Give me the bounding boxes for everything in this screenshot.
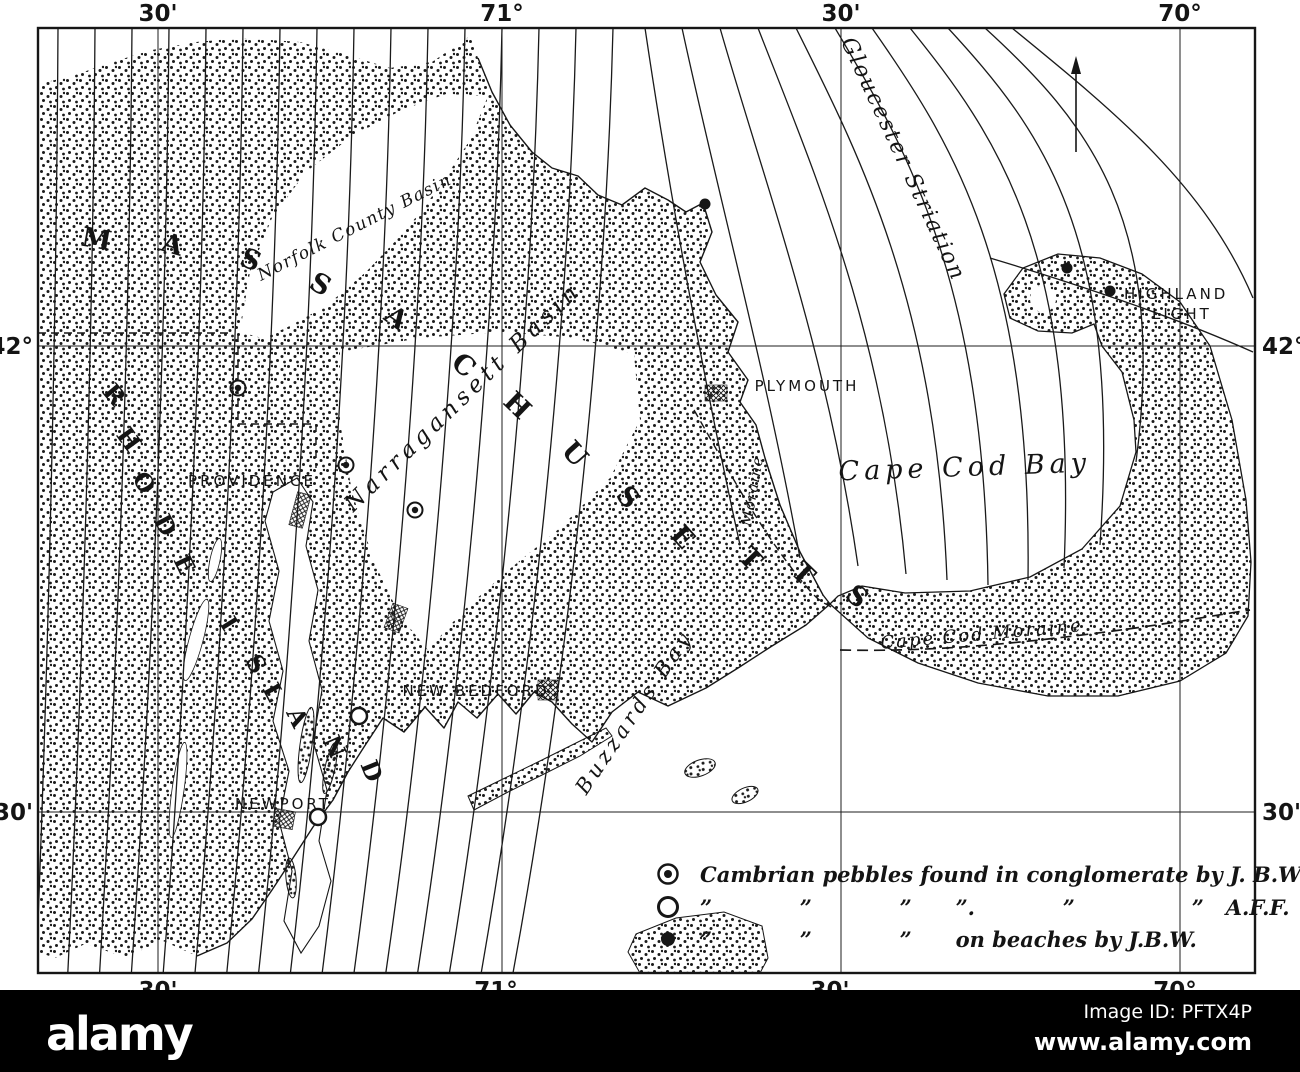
striation-line [985, 28, 1143, 462]
north-arrow-icon [1071, 56, 1081, 152]
legend-row-2: ” ” ” ”. ” ” A.F.F. [700, 895, 1290, 920]
land-stipple [38, 36, 1251, 973]
alamy-logo: alamy [46, 1007, 194, 1061]
top-label: 70° [1158, 1, 1202, 27]
providence-label: PROVIDENCE [188, 472, 316, 490]
open-circle-icon [351, 708, 367, 724]
legend-row-1: Cambrian pebbles found in conglomerate b… [700, 862, 1300, 887]
image-id-text: Image ID: PFTX4P [1084, 1001, 1252, 1023]
map-figure: 30' 71° 30' 70° 42° 30' 42° 30' 30' 71° … [0, 0, 1300, 1072]
provincetown-harbor [1030, 286, 1056, 312]
highland-light-label: LIGHT [1152, 305, 1212, 323]
highland-light-label: HIGHLAND [1124, 285, 1228, 303]
left-label: 42° [0, 334, 33, 360]
watermark-footer: alamy Image ID: PFTX4P www.alamy.com [0, 990, 1300, 1072]
legend-row-3: ” ” ” on beaches by J.B.W. [700, 927, 1197, 952]
gloucester-striation-label: Gloucester Striation [835, 33, 970, 285]
website-text: www.alamy.com [1034, 1028, 1252, 1056]
filled-dot-icon [1062, 263, 1073, 274]
striation-line [872, 28, 1028, 580]
small-island [729, 783, 760, 808]
filled-dot-icon [661, 932, 675, 946]
filled-dot-icon [1105, 286, 1116, 297]
circled-dot-icon [659, 865, 678, 884]
cape-cod-bay-label: Cape Cod Bay [838, 448, 1092, 488]
new-bedford-label: NEW BEDFORD [402, 682, 549, 700]
scanned-map-page: 30' 71° 30' 70° 42° 30' 42° 30' 30' 71° … [0, 0, 1300, 1072]
plymouth-patch [705, 385, 727, 401]
filled-dot-icon [700, 199, 711, 210]
state-letter: M [79, 222, 114, 258]
top-label: 71° [480, 1, 524, 27]
top-label: 30' [138, 1, 177, 27]
open-circle-icon [659, 898, 678, 917]
plymouth-label: PLYMOUTH [755, 377, 860, 395]
left-label: 30' [0, 800, 33, 826]
state-letter: D [355, 756, 390, 786]
right-label: 30' [1262, 800, 1300, 826]
right-label: 42° [1262, 334, 1300, 360]
top-label: 30' [821, 1, 860, 27]
small-island [682, 755, 718, 781]
newport-label: NEWPORT [235, 795, 331, 813]
legend: Cambrian pebbles found in conglomerate b… [659, 862, 1300, 952]
